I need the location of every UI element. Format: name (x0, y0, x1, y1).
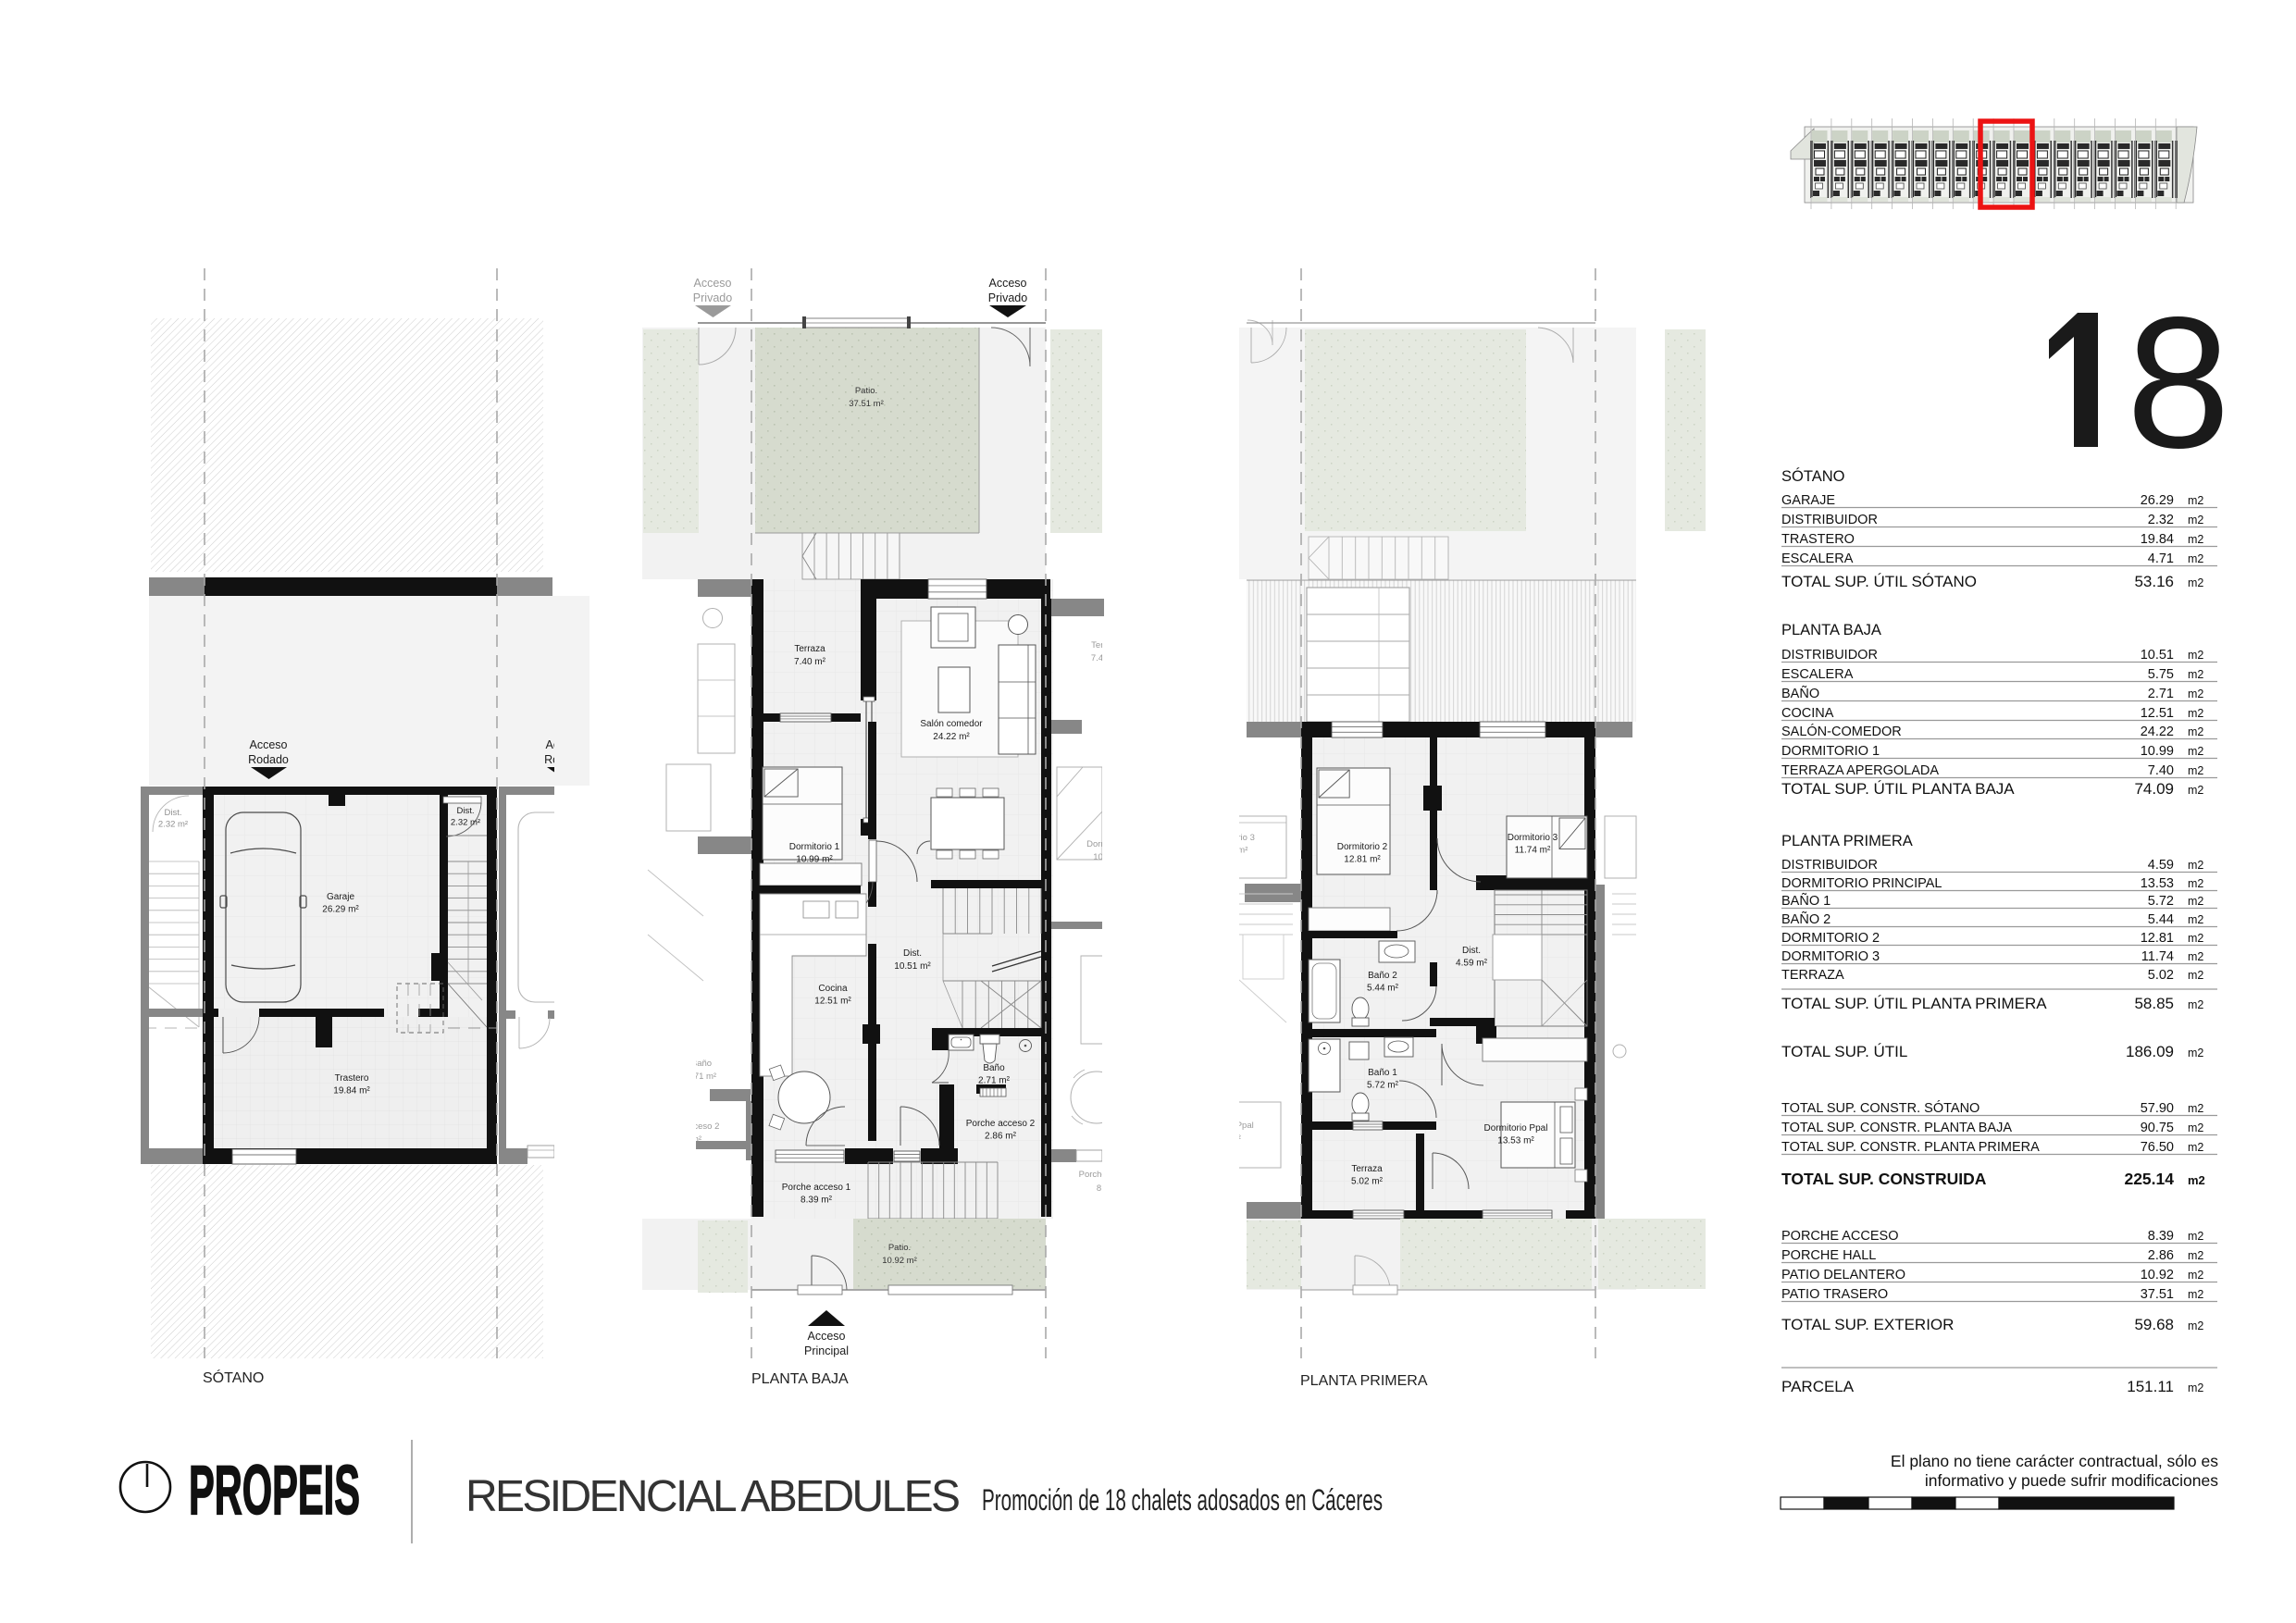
svg-text:m2: m2 (2188, 1249, 2203, 1262)
svg-text:Acceso: Acceso (989, 277, 1027, 290)
svg-text:PORCHE HALL: PORCHE HALL (1781, 1248, 1876, 1263)
svg-text:57.90: 57.90 (2141, 1101, 2174, 1116)
svg-text:5.72 m²: 5.72 m² (1367, 1081, 1399, 1091)
svg-text:Dist.: Dist. (903, 948, 922, 959)
svg-text:ESCALERA: ESCALERA (1781, 667, 1854, 682)
svg-text:DORMITORIO 3: DORMITORIO 3 (1781, 949, 1880, 964)
svg-text:19.84 m²: 19.84 m² (333, 1086, 370, 1096)
svg-text:2.86: 2.86 (2148, 1248, 2174, 1263)
svg-text:m2: m2 (2188, 784, 2203, 797)
svg-text:10.92 m²: 10.92 m² (882, 1256, 917, 1266)
svg-text:12.81 m²: 12.81 m² (1344, 855, 1381, 865)
svg-text:74.09: 74.09 (2134, 780, 2174, 798)
svg-text:58.85: 58.85 (2134, 995, 2174, 1012)
svg-text:m2: m2 (2188, 1230, 2203, 1243)
svg-text:GARAJE: GARAJE (1781, 493, 1835, 508)
svg-text:Baño 2: Baño 2 (1368, 971, 1397, 981)
svg-text:m2: m2 (2188, 1288, 2203, 1301)
svg-text:m2: m2 (2188, 1047, 2203, 1059)
svg-text:Porche acceso 1: Porche acceso 1 (782, 1183, 851, 1193)
svg-text:Dist.: Dist. (1462, 946, 1481, 956)
svg-text:53.16: 53.16 (2134, 573, 2174, 590)
svg-text:90.75: 90.75 (2141, 1121, 2174, 1135)
svg-text:m2: m2 (2188, 649, 2203, 662)
svg-text:m2: m2 (2188, 1173, 2205, 1187)
svg-text:19.84: 19.84 (2141, 532, 2174, 547)
svg-text:151.11: 151.11 (2127, 1378, 2174, 1395)
svg-text:Promoción de 18 chalets adosad: Promoción de 18 chalets adosados en Cáce… (982, 1483, 1383, 1517)
svg-text:186.09: 186.09 (2126, 1043, 2174, 1060)
svg-text:10.51 m²: 10.51 m² (894, 961, 931, 972)
svg-text:DORMITORIO 2: DORMITORIO 2 (1781, 931, 1880, 946)
svg-text:13.53: 13.53 (2141, 876, 2174, 891)
svg-text:Dist.: Dist. (165, 808, 182, 818)
svg-text:Principal: Principal (804, 1344, 849, 1357)
svg-text:26.29 m²: 26.29 m² (322, 905, 359, 915)
svg-text:Rodado: Rodado (248, 753, 289, 766)
svg-text:76.50: 76.50 (2141, 1140, 2174, 1155)
svg-text:Terraza: Terraza (794, 644, 825, 654)
svg-text:4.59: 4.59 (2148, 858, 2174, 873)
svg-text:Baño 1: Baño 1 (1368, 1068, 1397, 1078)
svg-text:Cocina: Cocina (818, 984, 848, 994)
svg-text:8: 8 (2127, 278, 2230, 487)
svg-text:13.53 m²: 13.53 m² (1497, 1136, 1534, 1146)
svg-text:Dormitorio Ppal: Dormitorio Ppal (1484, 1123, 1548, 1134)
svg-text:5.02 m²: 5.02 m² (1351, 1177, 1384, 1187)
svg-text:11.74 m²: 11.74 m² (1515, 846, 1551, 856)
svg-text:m2: m2 (2188, 533, 2203, 546)
svg-text:24.22: 24.22 (2141, 725, 2174, 739)
svg-text:PARCELA: PARCELA (1781, 1378, 1855, 1395)
svg-text:PORCHE ACCESO: PORCHE ACCESO (1781, 1229, 1899, 1244)
svg-text:m2: m2 (2188, 764, 2203, 777)
svg-text:Acceso: Acceso (250, 738, 288, 751)
svg-text:PLANTA BAJA: PLANTA BAJA (751, 1371, 849, 1387)
svg-text:TOTAL SUP. ÚTIL PLANTA BAJA: TOTAL SUP. ÚTIL PLANTA BAJA (1781, 780, 2015, 798)
svg-text:BAÑO: BAÑO (1781, 686, 1819, 701)
svg-text:2.71 m²: 2.71 m² (978, 1076, 1011, 1086)
svg-text:59.68: 59.68 (2134, 1316, 2174, 1333)
svg-text:Privado: Privado (988, 291, 1027, 304)
svg-text:BAÑO 2: BAÑO 2 (1781, 911, 1831, 927)
svg-text:m2: m2 (2188, 950, 2203, 963)
svg-text:10.92: 10.92 (2141, 1268, 2174, 1282)
svg-text:TOTAL SUP. ÚTIL SÓTANO: TOTAL SUP. ÚTIL SÓTANO (1781, 573, 1977, 590)
svg-text:TOTAL SUP. ÚTIL: TOTAL SUP. ÚTIL (1781, 1043, 1907, 1060)
svg-text:Garaje: Garaje (327, 892, 354, 902)
svg-text:DORMITORIO 1: DORMITORIO 1 (1781, 744, 1880, 759)
svg-text:TOTAL SUP. CONSTRUIDA: TOTAL SUP. CONSTRUIDA (1781, 1170, 1987, 1188)
svg-text:5.75: 5.75 (2148, 667, 2174, 682)
svg-text:DISTRIBUIDOR: DISTRIBUIDOR (1781, 648, 1878, 663)
svg-text:m2: m2 (2188, 1141, 2203, 1154)
svg-text:5.72: 5.72 (2148, 894, 2174, 909)
svg-text:m2: m2 (2188, 552, 2203, 565)
svg-text:TOTAL SUP. CONSTR. SÓTANO: TOTAL SUP. CONSTR. SÓTANO (1781, 1100, 1980, 1116)
svg-text:8.39 m²: 8.39 m² (800, 1196, 833, 1206)
svg-text:4.71: 4.71 (2148, 551, 2174, 566)
svg-text:Porche acceso 2: Porche acceso 2 (966, 1119, 1036, 1129)
svg-text:PATIO DELANTERO: PATIO DELANTERO (1781, 1268, 1905, 1282)
svg-text:m2: m2 (2188, 877, 2203, 890)
svg-text:SALÓN-COMEDOR: SALÓN-COMEDOR (1781, 724, 1902, 739)
svg-text:TOTAL SUP. CONSTR. PLANTA BAJA: TOTAL SUP. CONSTR. PLANTA BAJA (1781, 1121, 2012, 1135)
svg-text:DORMITORIO PRINCIPAL: DORMITORIO PRINCIPAL (1781, 876, 1942, 891)
svg-text:10.99: 10.99 (2141, 744, 2174, 759)
svg-text:PATIO TRASERO: PATIO TRASERO (1781, 1287, 1888, 1302)
svg-text:5.02: 5.02 (2148, 968, 2174, 983)
svg-text:PLANTA BAJA: PLANTA BAJA (1781, 622, 1881, 638)
svg-text:2.32 m²: 2.32 m² (451, 818, 480, 828)
svg-text:ESCALERA: ESCALERA (1781, 551, 1854, 566)
svg-text:TERRAZA: TERRAZA (1781, 968, 1844, 983)
svg-text:225.14: 225.14 (2124, 1170, 2174, 1188)
svg-text:m2: m2 (2188, 932, 2203, 945)
svg-text:12.51 m²: 12.51 m² (814, 997, 851, 1007)
svg-text:Dist.: Dist. (457, 806, 475, 816)
svg-text:TRASTERO: TRASTERO (1781, 532, 1855, 547)
svg-text:12.81: 12.81 (2141, 931, 2174, 946)
svg-text:10.51: 10.51 (2141, 648, 2174, 663)
svg-text:2.71: 2.71 (2148, 687, 2174, 701)
svg-text:m2: m2 (2188, 576, 2203, 589)
svg-text:Salón comedor: Salón comedor (920, 719, 983, 729)
svg-text:m2: m2 (2188, 494, 2203, 507)
svg-text:11.74: 11.74 (2141, 949, 2174, 964)
svg-text:5.44: 5.44 (2148, 912, 2174, 927)
svg-text:Dormitorio 2: Dormitorio 2 (1337, 842, 1388, 852)
svg-text:El plano no tiene carácter con: El plano no tiene carácter contractual, … (1891, 1452, 2218, 1470)
svg-text:informativo y puede sufrir mod: informativo y puede sufrir modificacione… (1925, 1471, 2218, 1490)
svg-text:m2: m2 (2188, 745, 2203, 758)
svg-text:Baño: Baño (983, 1063, 1005, 1073)
svg-text:Patio.: Patio. (888, 1243, 911, 1253)
svg-text:m2: m2 (2188, 514, 2203, 527)
svg-text:Acceso: Acceso (808, 1330, 846, 1343)
svg-text:m2: m2 (2188, 895, 2203, 908)
svg-text:DISTRIBUIDOR: DISTRIBUIDOR (1781, 513, 1878, 527)
svg-text:SÓTANO: SÓTANO (1781, 467, 1845, 485)
svg-text:4.59 m²: 4.59 m² (1456, 959, 1488, 969)
svg-text:m2: m2 (2188, 1121, 2203, 1134)
svg-text:m2: m2 (2188, 1269, 2203, 1282)
svg-text:TOTAL SUP. ÚTIL PLANTA PRIMERA: TOTAL SUP. ÚTIL PLANTA PRIMERA (1781, 995, 2047, 1012)
svg-text:Acceso: Acceso (694, 277, 732, 290)
svg-text:BAÑO 1: BAÑO 1 (1781, 893, 1831, 909)
svg-text:m2: m2 (2188, 1102, 2203, 1115)
svg-text:m2: m2 (2188, 725, 2203, 738)
svg-text:m2: m2 (2188, 859, 2203, 872)
svg-text:2.32 m²: 2.32 m² (158, 820, 188, 830)
svg-text:PLANTA PRIMERA: PLANTA PRIMERA (1300, 1373, 1428, 1389)
svg-text:TOTAL SUP. CONSTR. PLANTA PRIM: TOTAL SUP. CONSTR. PLANTA PRIMERA (1781, 1140, 2040, 1155)
svg-text:m2: m2 (2188, 688, 2203, 700)
svg-text:7.40: 7.40 (2148, 763, 2174, 778)
svg-text:COCINA: COCINA (1781, 706, 1834, 721)
svg-text:8.39: 8.39 (2148, 1229, 2174, 1244)
svg-text:37.51 m²: 37.51 m² (849, 399, 884, 409)
svg-text:7.40 m²: 7.40 m² (794, 657, 826, 667)
svg-text:12.51: 12.51 (2141, 706, 2174, 721)
svg-text:Dormitorio 1: Dormitorio 1 (789, 842, 840, 852)
svg-text:2.86 m²: 2.86 m² (985, 1132, 1017, 1142)
svg-text:SÓTANO: SÓTANO (203, 1369, 264, 1386)
svg-text:5.44 m²: 5.44 m² (1367, 984, 1399, 994)
svg-text:Patio.: Patio. (855, 386, 877, 396)
svg-text:37.51: 37.51 (2141, 1287, 2174, 1302)
svg-text:m2: m2 (2188, 1381, 2203, 1394)
svg-text:DISTRIBUIDOR: DISTRIBUIDOR (1781, 858, 1878, 873)
svg-text:24.22 m²: 24.22 m² (933, 732, 970, 742)
svg-text:RESIDENCIAL ABEDULES: RESIDENCIAL ABEDULES (465, 1472, 961, 1521)
svg-text:m2: m2 (2188, 707, 2203, 720)
svg-text:m2: m2 (2188, 668, 2203, 681)
svg-text:m2: m2 (2188, 969, 2203, 982)
svg-text:26.29: 26.29 (2141, 493, 2174, 508)
svg-text:Terraza: Terraza (1351, 1164, 1383, 1174)
svg-text:Privado: Privado (693, 291, 732, 304)
svg-text:2.32: 2.32 (2148, 513, 2174, 527)
svg-text:Dormitorio 3: Dormitorio 3 (1508, 833, 1558, 843)
svg-text:m2: m2 (2188, 998, 2203, 1011)
svg-text:m2: m2 (2188, 1319, 2203, 1332)
svg-text:m2: m2 (2188, 913, 2203, 926)
svg-text:TERRAZA APERGOLADA: TERRAZA APERGOLADA (1781, 763, 1939, 778)
svg-text:PLANTA PRIMERA: PLANTA PRIMERA (1781, 833, 1913, 849)
svg-text:TOTAL SUP. EXTERIOR: TOTAL SUP. EXTERIOR (1781, 1316, 1954, 1333)
svg-text:PROPEIS: PROPEIS (189, 1451, 360, 1529)
svg-text:Trastero: Trastero (335, 1073, 369, 1084)
